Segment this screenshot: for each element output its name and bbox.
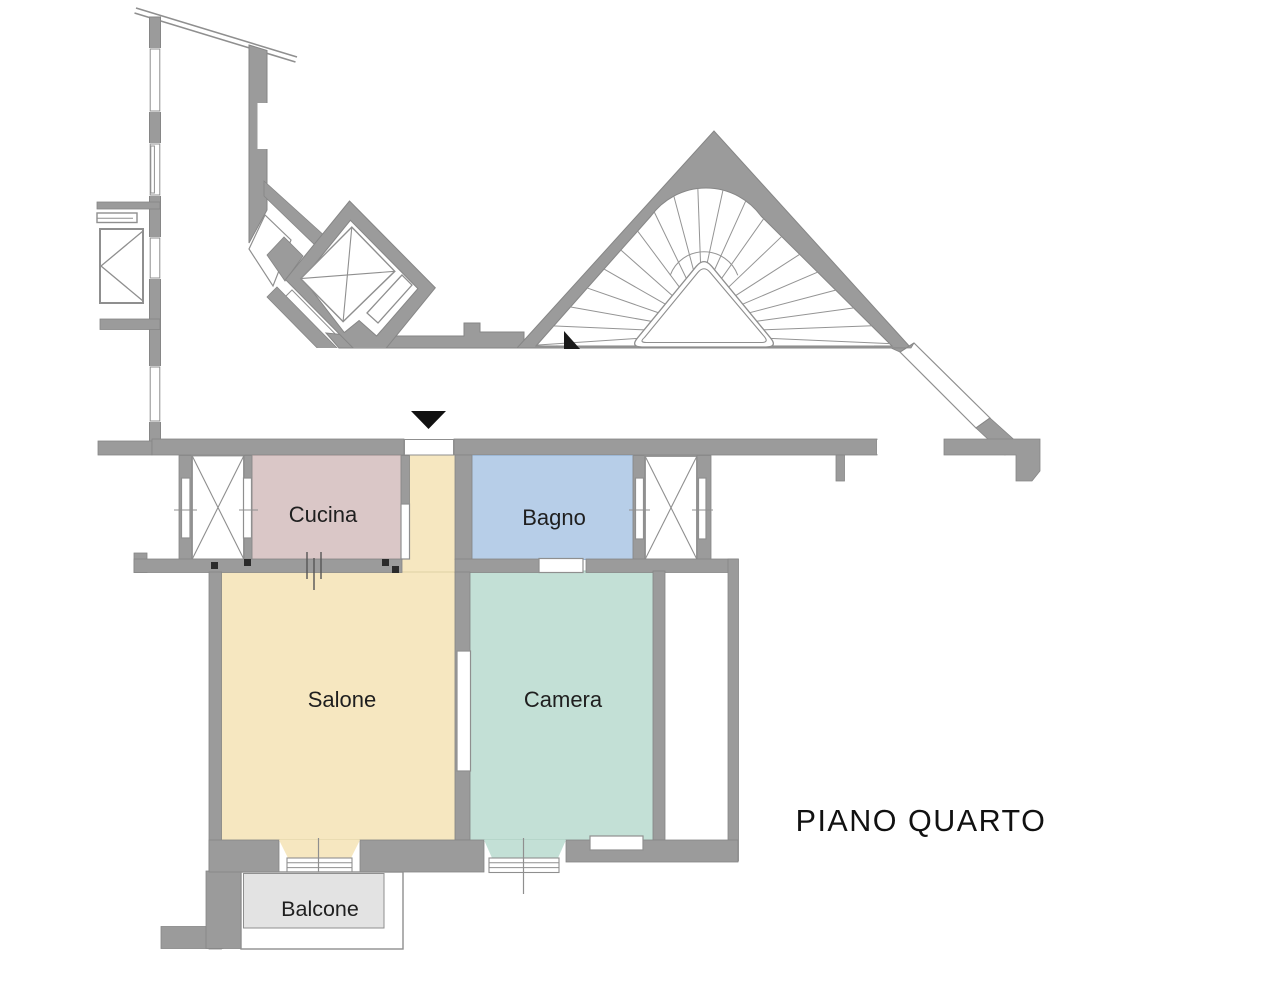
svg-text:Cucina: Cucina [289,502,358,527]
svg-text:Camera: Camera [524,687,603,712]
svg-text:PIANO QUARTO: PIANO QUARTO [796,804,1047,838]
svg-text:Bagno: Bagno [522,505,586,530]
svg-text:Balcone: Balcone [281,897,359,921]
svg-text:Salone: Salone [308,687,377,712]
